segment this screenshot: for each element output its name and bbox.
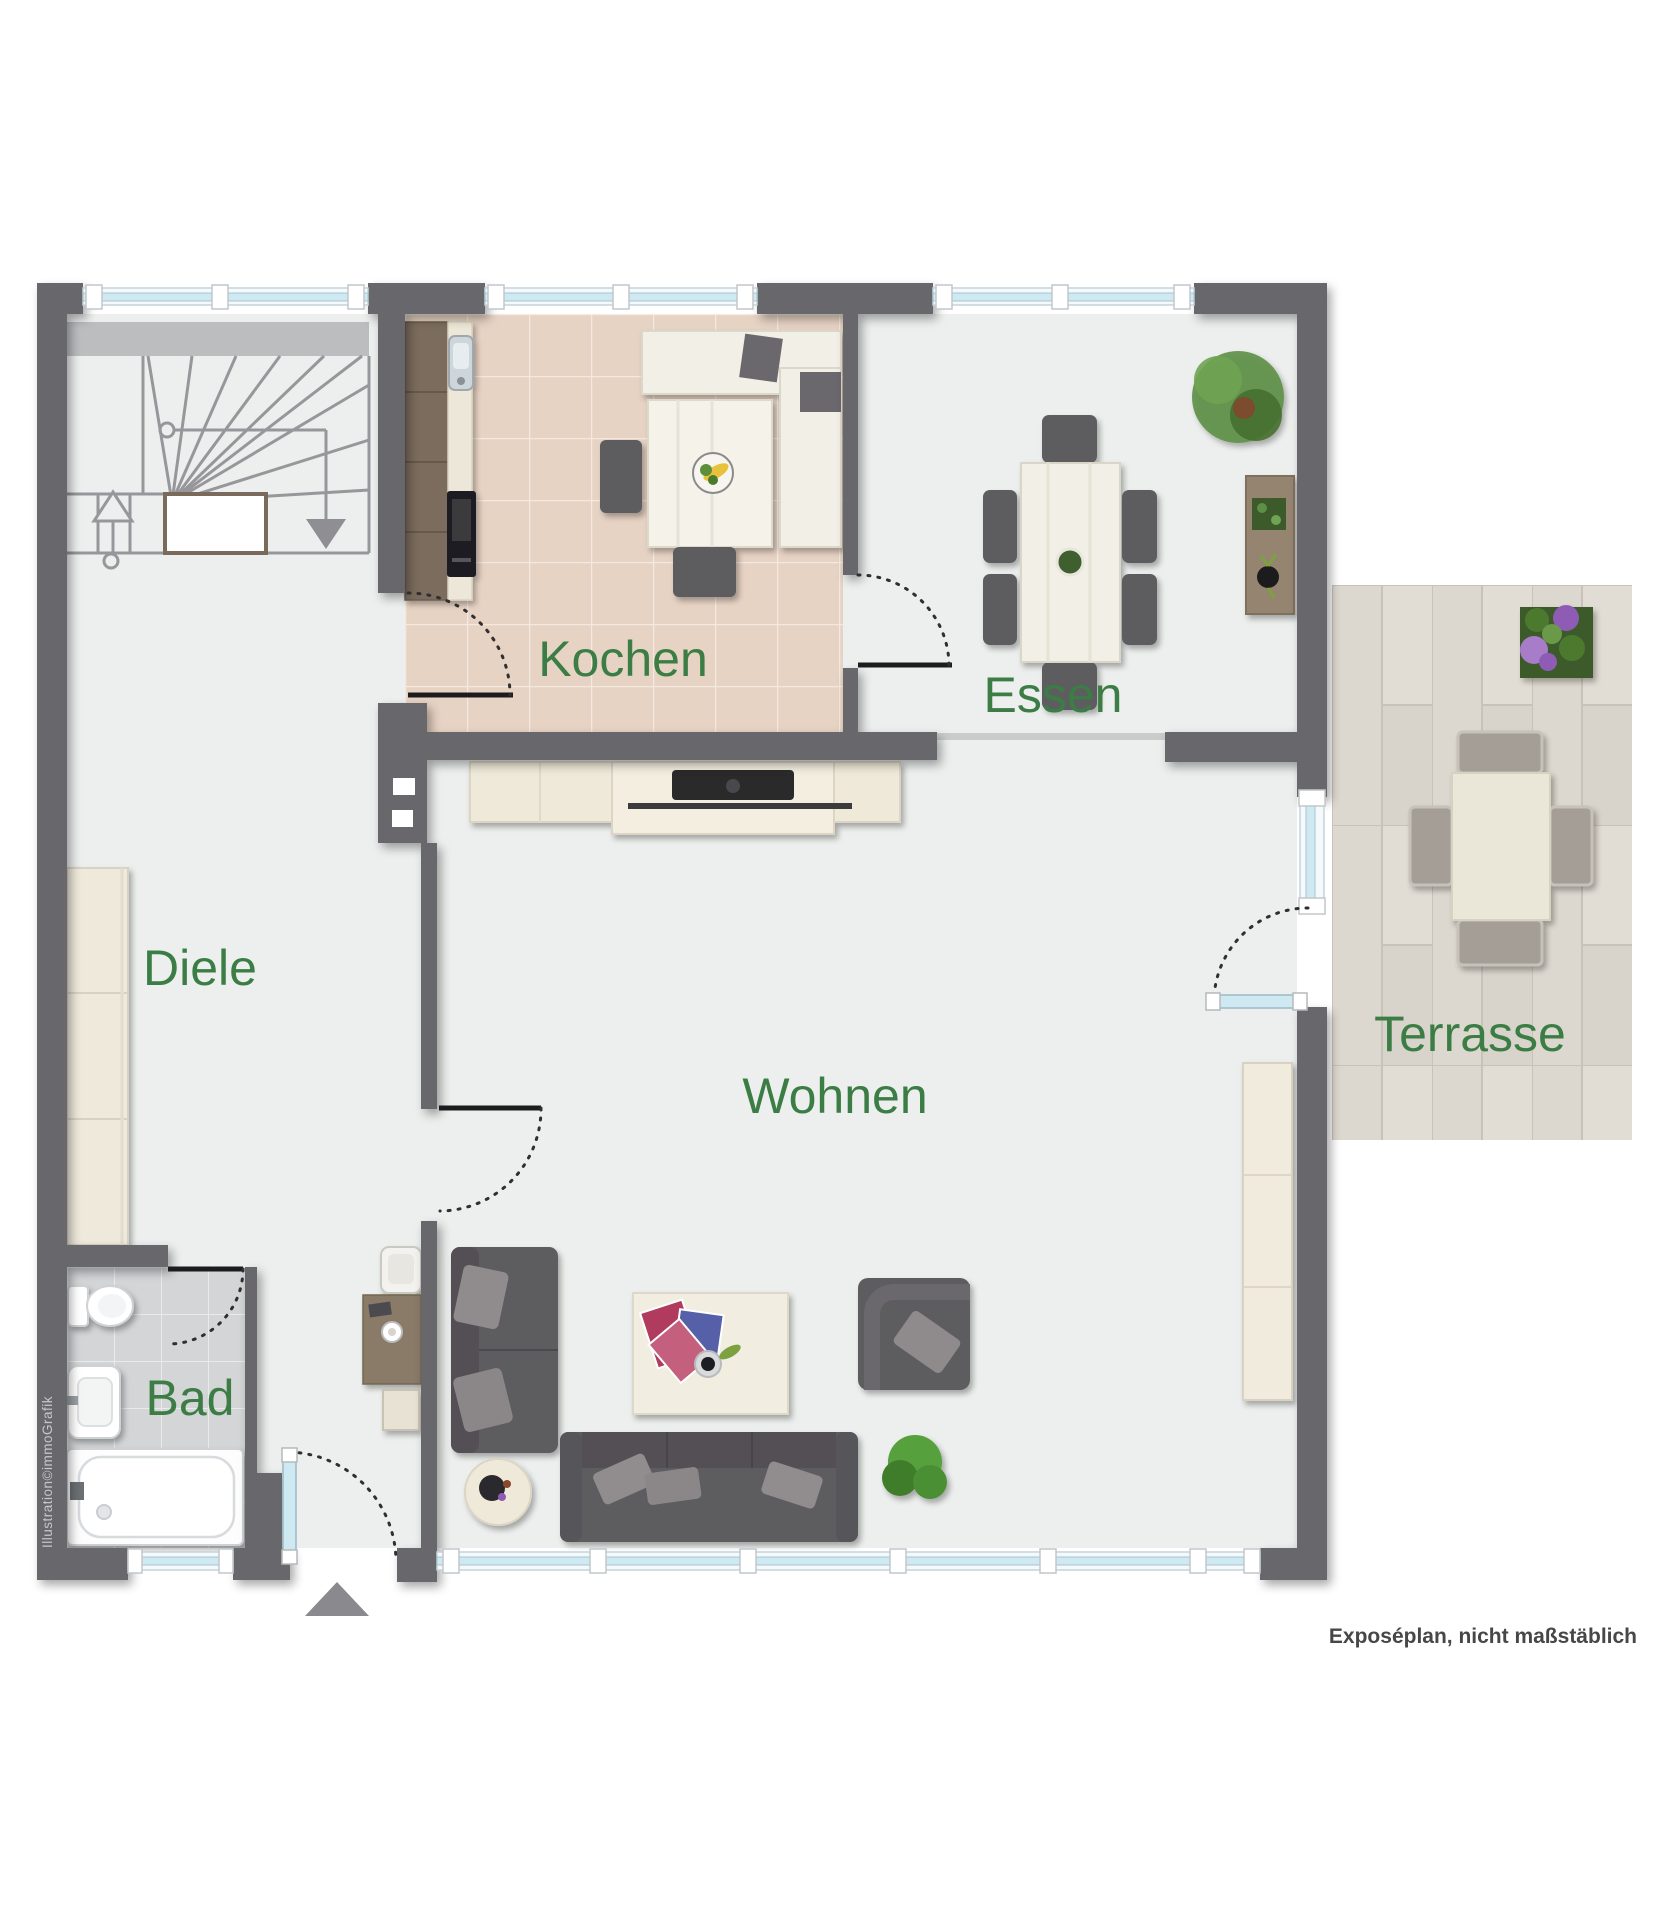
planter-box — [1252, 498, 1286, 530]
wall-bad-right-thin — [245, 1267, 257, 1473]
oven — [447, 491, 476, 577]
shaft-opening — [393, 778, 415, 795]
floorplan-page: Kochen Essen Diele Wohnen Bad Terrasse I… — [0, 0, 1671, 1920]
bathtub — [67, 1449, 243, 1545]
wall-bad-top — [37, 1245, 168, 1267]
wall-kitchen-bottom — [397, 732, 937, 760]
label-wohnen: Wohnen — [742, 1068, 927, 1124]
terrace-door-glass-panel — [1299, 790, 1325, 914]
wall-kitchen-left — [378, 314, 405, 593]
dining-chair — [1042, 415, 1097, 463]
wardrobe — [67, 868, 128, 1245]
soundbar — [628, 803, 852, 809]
wall-top-pillar-d — [1194, 283, 1327, 314]
wall-kochen-essen-upper — [843, 314, 858, 575]
bench-pillow — [800, 372, 841, 412]
label-kochen: Kochen — [538, 631, 708, 687]
kitchen-cabinets — [405, 322, 476, 600]
label-essen: Essen — [984, 667, 1123, 723]
window-top-1 — [83, 285, 368, 309]
garden-chair — [1550, 807, 1592, 885]
kitchen-sink — [449, 336, 473, 390]
toilet — [68, 1286, 133, 1326]
armchair — [858, 1278, 970, 1390]
wall-right-lower — [1297, 1007, 1327, 1550]
plan-caption: Exposéplan, nicht maßstäblich — [1329, 1625, 1637, 1648]
essen-plant — [1192, 351, 1284, 443]
faucet — [66, 1396, 78, 1405]
garden-table — [1452, 773, 1550, 920]
dining-chair — [1122, 490, 1157, 563]
drain — [97, 1505, 111, 1519]
highboard — [1243, 1063, 1292, 1400]
stair-landing-band — [67, 322, 369, 356]
label-diele: Diele — [143, 940, 257, 996]
essen-wohnen-divider — [937, 733, 1165, 740]
essen-sideboard — [1246, 476, 1294, 614]
garden-chair — [1458, 732, 1542, 773]
window-bottom-wohnen — [437, 1549, 1260, 1573]
label-bad: Bad — [146, 1370, 235, 1426]
garden-chair — [1410, 807, 1452, 885]
wall-diele-wohnen-upper — [421, 843, 437, 1109]
wall-bottom-entry-corner — [397, 1548, 437, 1582]
round-side-table — [465, 1459, 531, 1525]
bench-pillow — [739, 334, 783, 383]
washbasin — [66, 1366, 120, 1438]
shaft-opening — [392, 810, 413, 827]
dining-chair — [983, 574, 1017, 645]
dining-chair — [1122, 574, 1157, 645]
tub-faucet — [70, 1482, 84, 1500]
wall-kochen-essen-lower — [843, 668, 858, 732]
floorplan-svg: Kochen Essen Diele Wohnen Bad Terrasse I… — [0, 0, 1671, 1920]
stool — [383, 1390, 419, 1430]
nook-chair — [600, 440, 642, 513]
entrance-arrow-icon — [305, 1582, 369, 1616]
wall-bottom-right-corner — [1260, 1548, 1327, 1580]
coffee-table — [633, 1293, 788, 1414]
wall-diele-wohnen-lower — [421, 1221, 437, 1550]
wall-bad-right-chunk — [245, 1473, 282, 1578]
table-bowl — [1057, 549, 1083, 575]
window-top-2 — [485, 285, 757, 309]
wall-bottom-bad-left — [37, 1548, 128, 1580]
copyright-credit: Illustration©immoGrafik — [40, 1396, 55, 1548]
two-seat-sofa — [451, 1247, 558, 1453]
dining-chair — [983, 490, 1017, 563]
stair-landing-platform — [165, 494, 266, 553]
wall-top-pillar-c — [757, 283, 933, 314]
three-seat-sofa — [560, 1432, 858, 1542]
label-terrasse: Terrasse — [1374, 1006, 1566, 1062]
garden-chair — [1458, 920, 1542, 965]
wall-top-pillar-b — [368, 283, 485, 314]
window-top-3 — [933, 285, 1194, 309]
wall-essen-stub — [1165, 732, 1297, 762]
flower-planter — [1520, 605, 1593, 678]
nook-chair — [673, 547, 736, 597]
wall-right-upper — [1297, 314, 1327, 797]
wall-left — [37, 283, 67, 1580]
window-bad — [128, 1549, 233, 1573]
vase — [1257, 566, 1279, 588]
